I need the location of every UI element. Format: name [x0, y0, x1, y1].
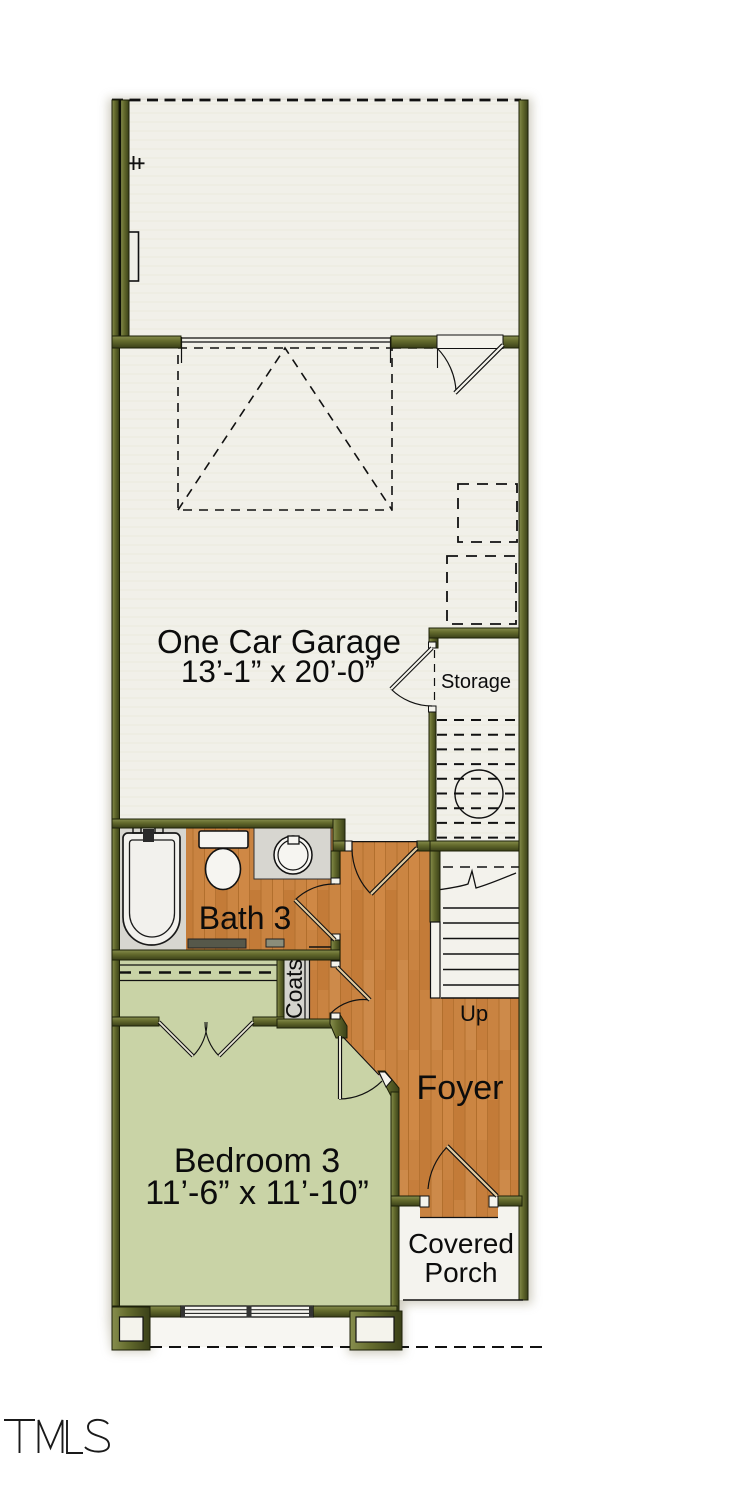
svg-text:Bath 3: Bath 3 — [199, 900, 292, 936]
svg-text:Porch: Porch — [424, 1257, 497, 1288]
svg-text:Foyer: Foyer — [417, 1069, 504, 1107]
svg-text:11’-6” x 11’-10”: 11’-6” x 11’-10” — [145, 1174, 369, 1212]
svg-text:Storage: Storage — [441, 671, 511, 693]
svg-text:Covered: Covered — [408, 1228, 514, 1259]
svg-text:Up: Up — [460, 1001, 488, 1026]
svg-text:Coats: Coats — [281, 959, 307, 1019]
svg-text:13’-1” x 20’-0”: 13’-1” x 20’-0” — [181, 653, 375, 689]
